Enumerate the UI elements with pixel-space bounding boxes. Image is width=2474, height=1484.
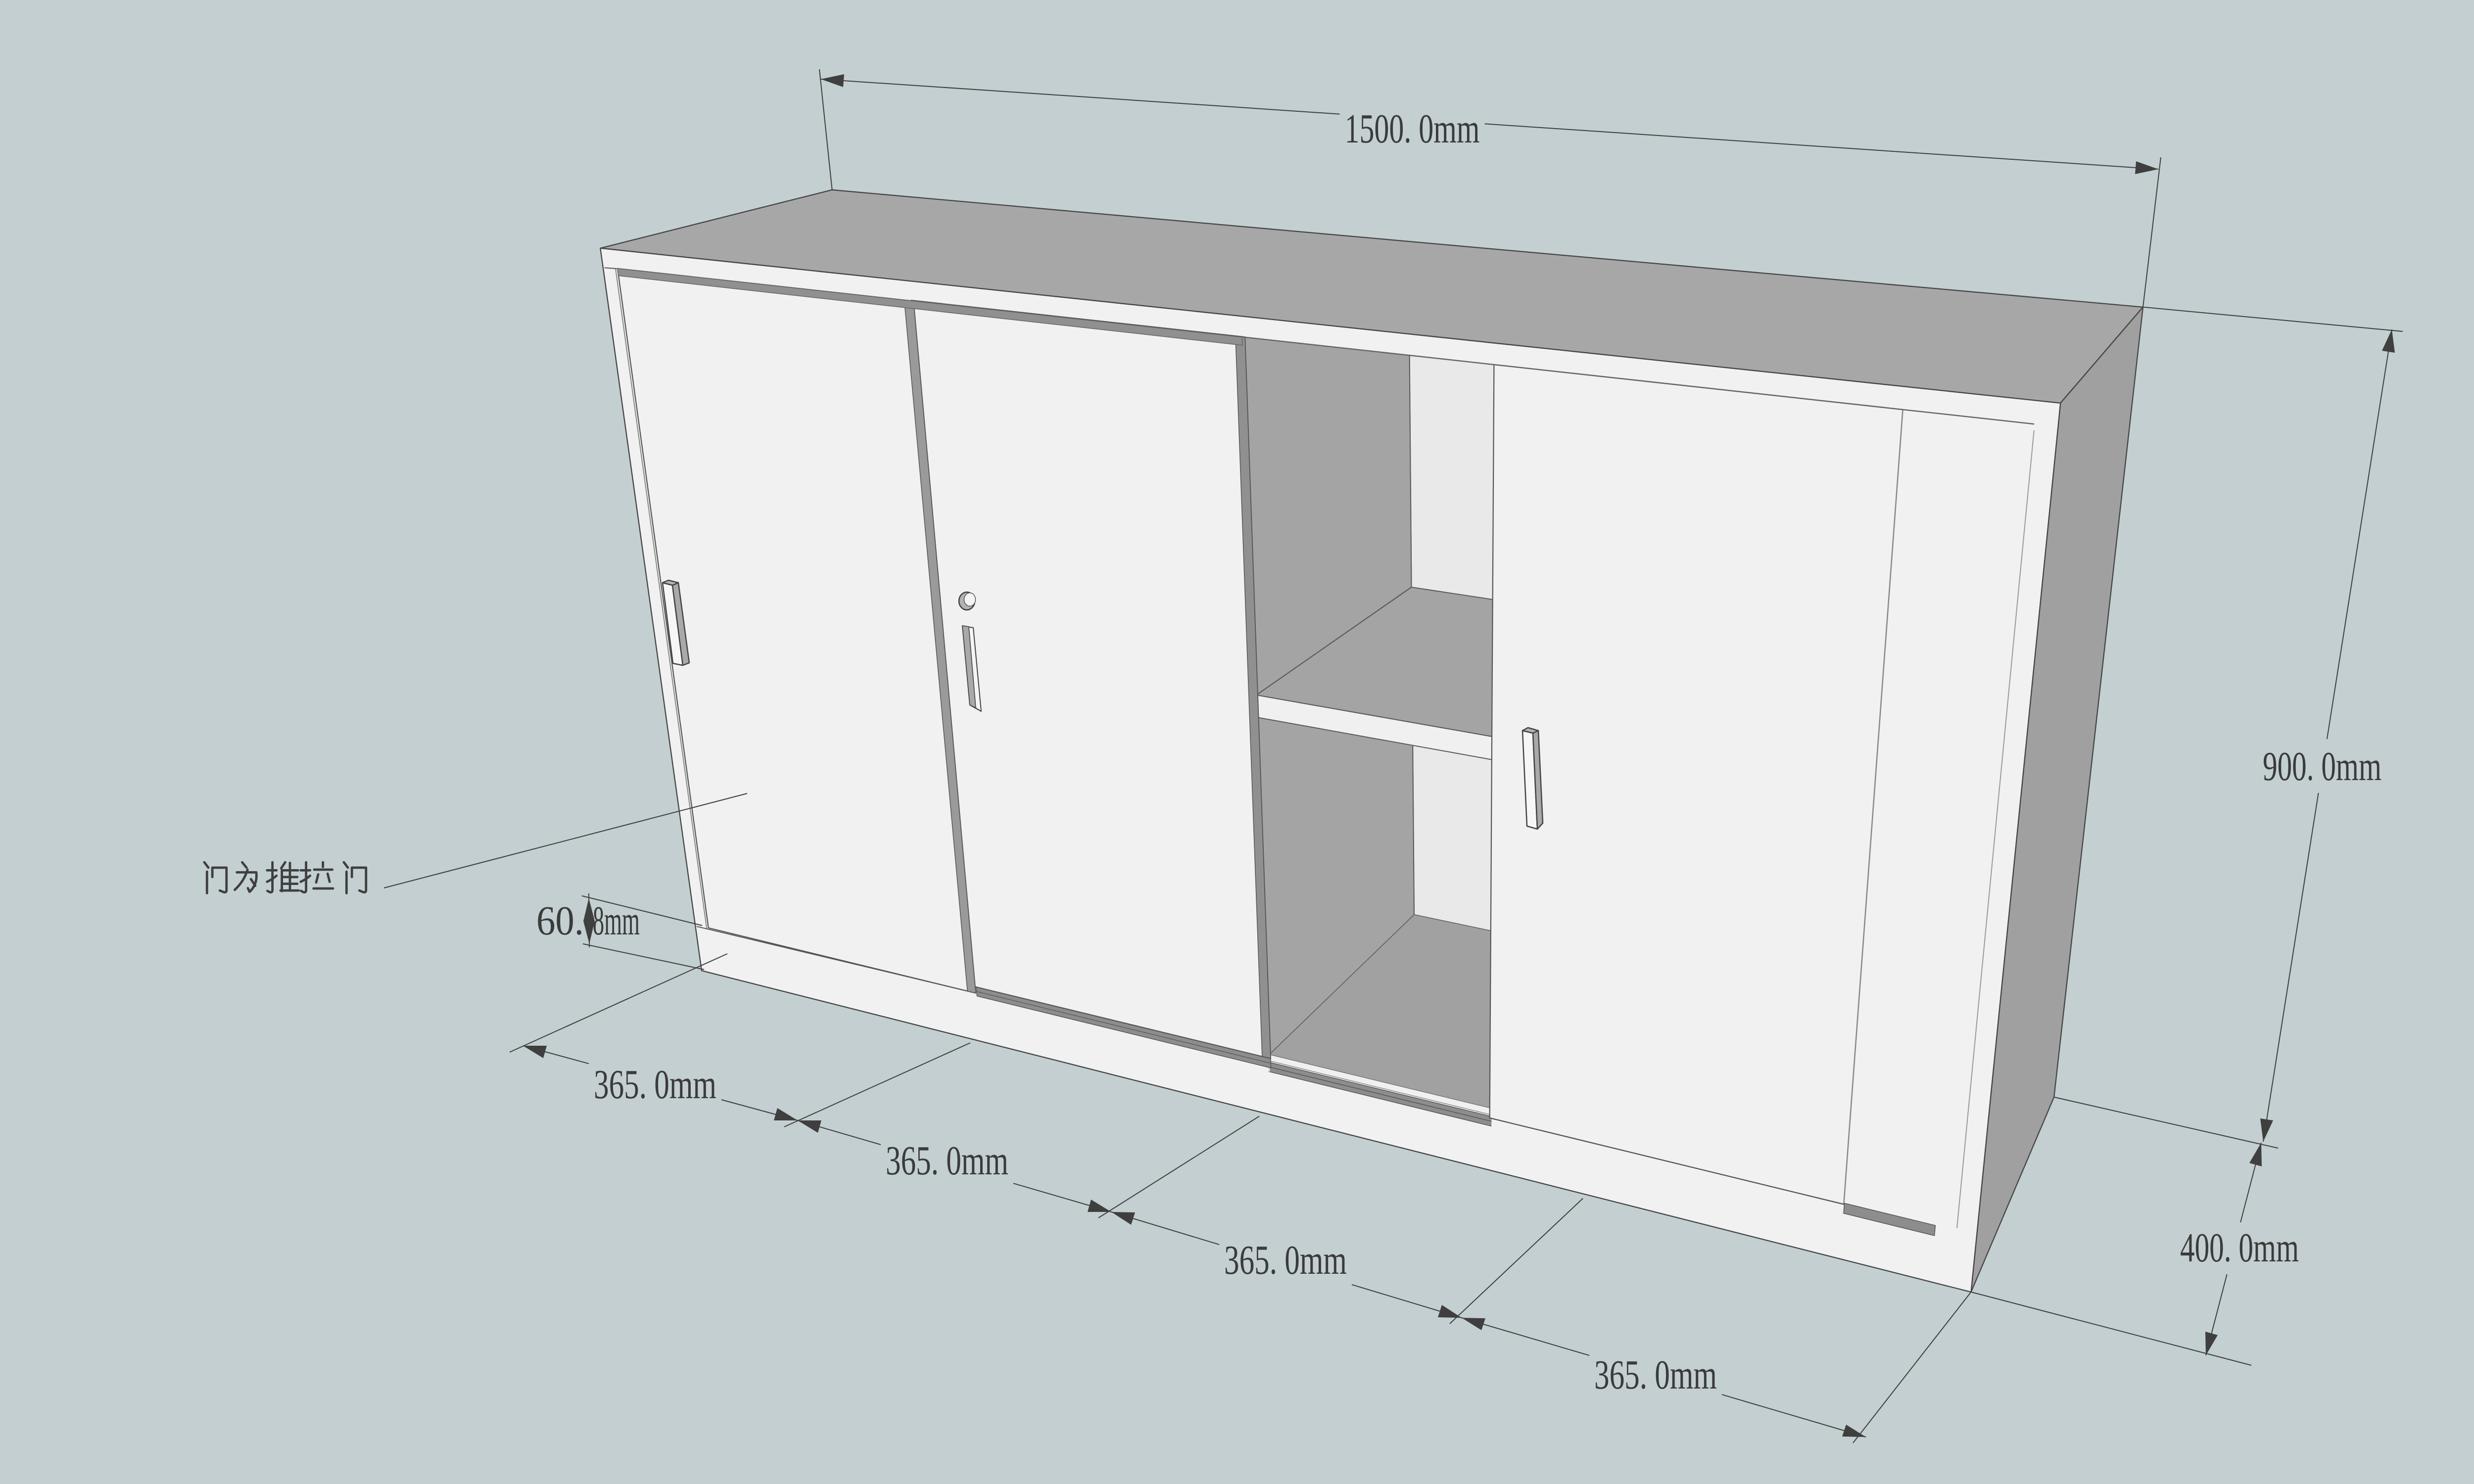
svg-text:365. 0mm: 365. 0mm — [886, 1138, 1008, 1184]
svg-text:365. 0mm: 365. 0mm — [594, 1062, 716, 1108]
svg-text:400. 0mm: 400. 0mm — [2180, 1225, 2299, 1271]
svg-text:365. 0mm: 365. 0mm — [1224, 1237, 1347, 1283]
svg-text:365. 0mm: 365. 0mm — [1594, 1352, 1717, 1398]
svg-text:60.: 60. — [536, 898, 584, 944]
svg-text:8mm: 8mm — [593, 898, 640, 944]
svg-text:900. 0mm: 900. 0mm — [2263, 743, 2381, 789]
svg-text:1500. 0mm: 1500. 0mm — [1345, 106, 1480, 152]
